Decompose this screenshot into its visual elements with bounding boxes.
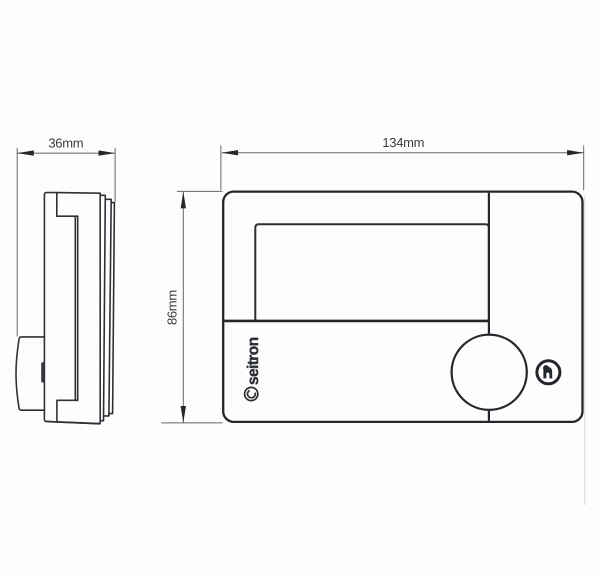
svg-text:86mm: 86mm (165, 290, 180, 325)
svg-text:36mm: 36mm (48, 135, 83, 150)
svg-text:seitron: seitron (245, 337, 262, 385)
svg-text:134mm: 134mm (382, 135, 424, 150)
